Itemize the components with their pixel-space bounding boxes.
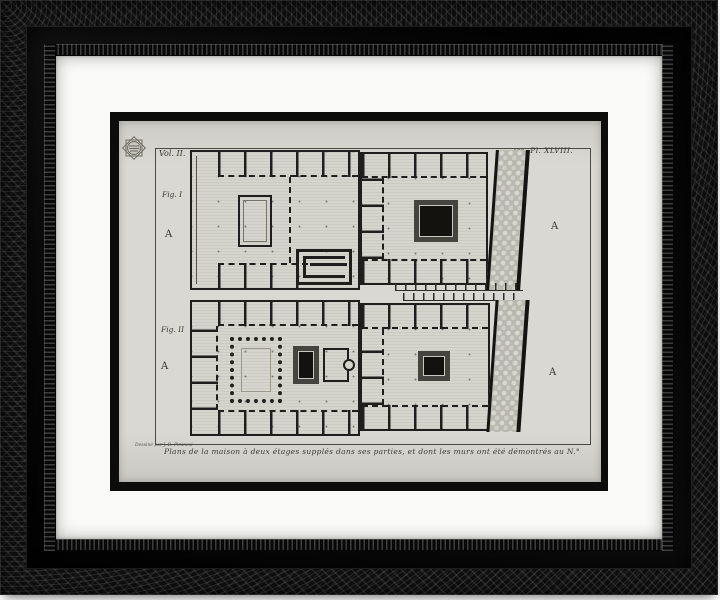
fig2r-bottom-rooms xyxy=(362,405,488,429)
fig2-left-house-plan xyxy=(190,300,360,436)
fig1-left-house-plan xyxy=(190,150,360,290)
fig2-peristyle-court xyxy=(241,348,271,392)
fig1-stair-maze-inner xyxy=(303,256,345,278)
section-marker-a-right-1: A xyxy=(551,221,558,232)
framed-print-photo: Vol. II. 438Pl. XLVIII. Fig. I A A Fig. … xyxy=(0,0,720,600)
section-marker-a-left-2: A xyxy=(161,361,168,372)
fig1r-bottom-rooms xyxy=(362,259,486,283)
fig2-dark-room-pool xyxy=(293,346,319,384)
fig2-apse-room xyxy=(323,348,349,382)
fig2-peristyle-columns xyxy=(230,337,282,403)
fig1-corridor-line xyxy=(196,156,197,284)
fig2-atrium-pool-core xyxy=(423,356,445,376)
frame-bead-bottom xyxy=(44,539,674,551)
section-marker-a-left-1: A xyxy=(165,229,172,240)
fig2-right-house-plan xyxy=(360,303,490,431)
plate-label: Pl. XLVIII. xyxy=(530,146,573,155)
frame-bead-left xyxy=(44,44,56,551)
fig1r-top-rooms xyxy=(362,154,486,178)
plate-caption: Plans de la maison à deux étages supplés… xyxy=(164,447,579,456)
fig1-top-rooms xyxy=(218,152,358,177)
fig1-impluvium xyxy=(238,195,272,247)
fig2-top-rooms xyxy=(218,302,358,326)
frame-bead-top xyxy=(44,44,674,56)
print-paper: Vol. II. 438Pl. XLVIII. Fig. I A A Fig. … xyxy=(119,121,601,482)
fig1-stair-maze-core xyxy=(310,263,347,266)
figure2-label: Fig. II xyxy=(161,325,184,334)
fig1-atrium-pool xyxy=(414,200,458,242)
collector-stamp-icon xyxy=(119,133,149,163)
fig2-atrium-pool xyxy=(418,351,450,381)
fig1-right-house-plan xyxy=(360,152,488,285)
picture-frame: Vol. II. 438Pl. XLVIII. Fig. I A A Fig. … xyxy=(0,0,718,595)
fig2-bottom-rooms xyxy=(218,410,358,434)
fig1-impluvium-inner xyxy=(243,200,267,242)
scale-bar-palms xyxy=(395,283,523,291)
fig1-colonnade-line xyxy=(289,177,291,263)
fig2-left-rooms xyxy=(192,326,218,410)
fig1-stair-maze xyxy=(296,249,352,285)
section-marker-a-right-2: A xyxy=(549,367,556,378)
frame-bead-right xyxy=(662,44,674,551)
fig1r-left-rooms xyxy=(362,178,384,259)
fig2-dark-room-core xyxy=(298,351,314,379)
fig1-bottom-rooms xyxy=(218,263,308,288)
fig2r-left-rooms xyxy=(362,329,384,405)
fig2-apse-niche xyxy=(343,359,355,371)
fig2r-top-rooms xyxy=(362,305,488,329)
figure1-label: Fig. I xyxy=(162,190,182,199)
volume-label: Vol. II. xyxy=(159,149,185,158)
fig1-atrium-pool-core xyxy=(419,205,453,237)
